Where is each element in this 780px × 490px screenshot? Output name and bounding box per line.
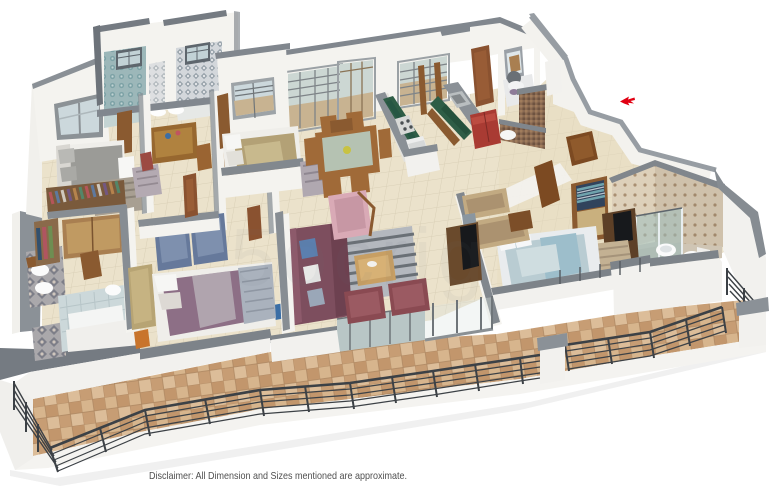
svg-text:Disclaimer: All Dimension and: Disclaimer: All Dimension and Sizes ment…	[149, 470, 407, 482]
svg-text:5ocrig: 5ocrig	[230, 212, 489, 303]
